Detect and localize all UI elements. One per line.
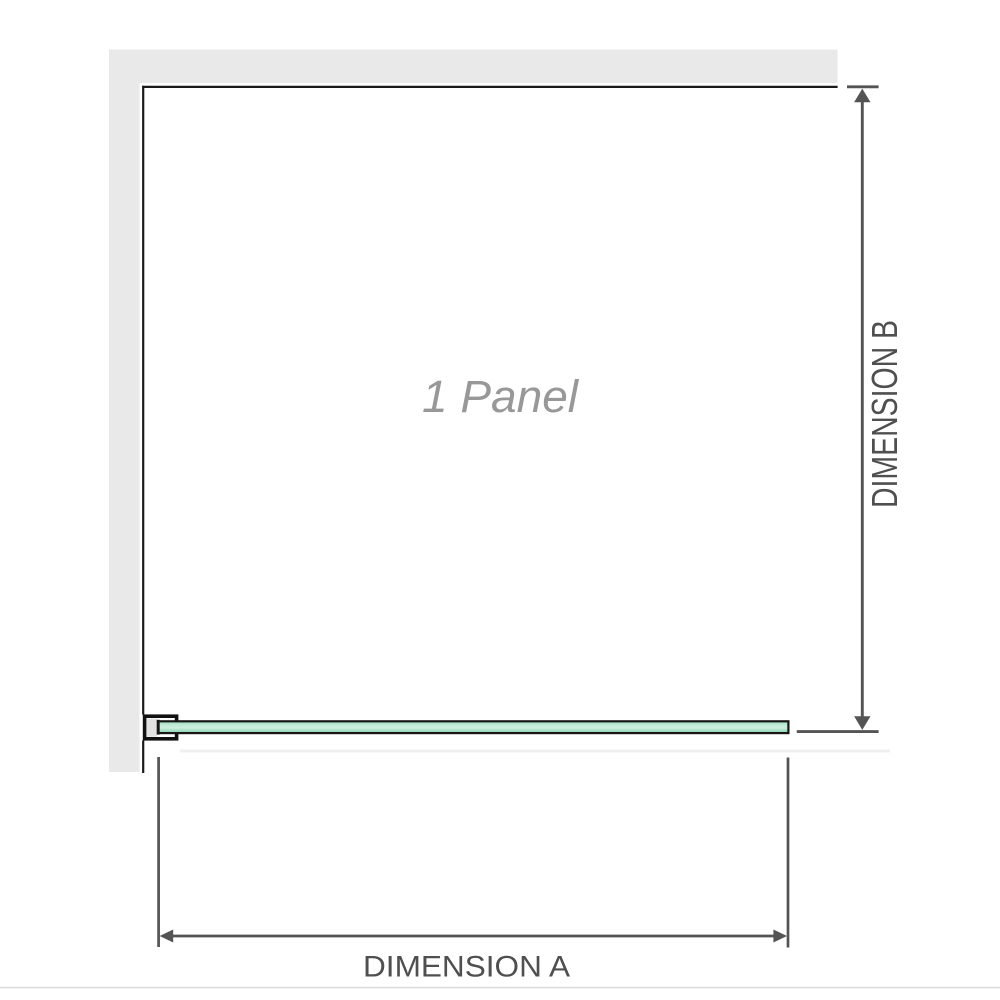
svg-text:1 Panel: 1 Panel	[422, 371, 580, 422]
svg-text:DIMENSION A: DIMENSION A	[363, 950, 570, 983]
svg-text:DIMENSION B: DIMENSION B	[864, 320, 905, 508]
